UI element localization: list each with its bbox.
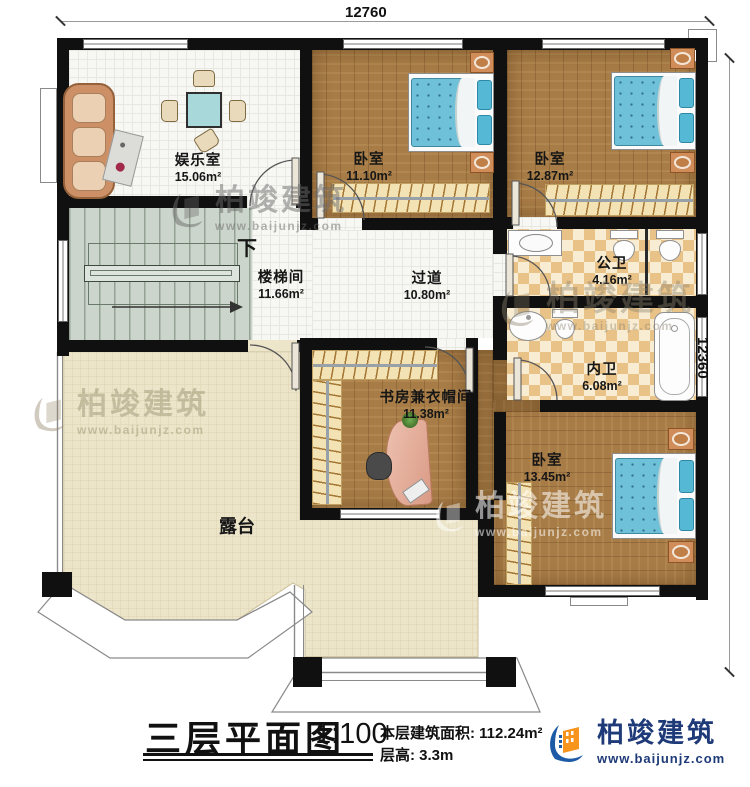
wardrobe <box>332 183 490 213</box>
room-name: 楼梯间 <box>258 270 305 287</box>
brand-website: www.baijunjz.com <box>597 751 725 766</box>
dimension-top-value: 12760 <box>345 4 387 21</box>
bed-pillow <box>679 78 694 108</box>
room-label-bedroom1: 卧室 11.10m² <box>346 152 392 184</box>
wall-passage-bedroom3 <box>494 412 506 500</box>
decor-dot <box>120 142 126 148</box>
window <box>58 240 68 322</box>
window <box>545 586 660 596</box>
room-name: 露台 <box>219 516 255 536</box>
title-underline <box>143 753 373 756</box>
wall-innerbath-bottom <box>540 400 696 412</box>
flower-decor <box>115 162 126 173</box>
wall-bedroom2-bottom <box>557 217 696 229</box>
watermark: 柏竣建筑 www.baijunjz.com <box>30 390 209 437</box>
dimension-right-value: 12360 <box>694 337 711 379</box>
bathroom-sink <box>509 311 547 341</box>
wardrobe <box>312 350 438 380</box>
toilet-tank <box>552 309 578 318</box>
dimension-text: 12760 <box>345 4 387 21</box>
bed-blanket <box>455 78 475 147</box>
sink-faucet <box>526 315 531 320</box>
room-label-bedroom3: 卧室 13.45m² <box>524 453 571 485</box>
door-gap-floor <box>513 217 557 229</box>
wall-bedroom1-bedroom2 <box>493 50 507 217</box>
toilet-tank <box>610 230 638 239</box>
plan-scale: 1:100 <box>315 718 388 751</box>
room-name: 书房兼衣帽间 <box>380 390 473 407</box>
bed-blanket <box>657 76 677 146</box>
window <box>542 39 665 49</box>
wall-study-top <box>466 338 478 350</box>
watermark-url: www.baijunjz.com <box>77 423 209 437</box>
floor-area-value: 112.24m² <box>479 725 542 742</box>
nightstand <box>470 52 494 73</box>
stairs-center-railing <box>84 265 240 282</box>
bed-pillow <box>679 113 694 143</box>
bed <box>612 453 696 539</box>
room-area: 6.08m² <box>582 379 622 394</box>
room-name: 卧室 <box>524 453 571 470</box>
wall-bath-left <box>493 229 507 254</box>
floor-height-row: 层高: 3.3m <box>380 744 453 765</box>
room-label-hallway: 过道 10.80m² <box>404 271 451 303</box>
bed <box>611 72 696 150</box>
nightstand <box>670 48 695 69</box>
room-area: 4.16m² <box>592 273 632 288</box>
room-name: 过道 <box>404 271 451 288</box>
toilet-tank <box>656 230 684 239</box>
wall-bedroom2-bottom <box>493 217 513 229</box>
floor-height-value: 3.3m <box>419 747 453 764</box>
room-label-terrace: 露台 <box>219 516 255 537</box>
window <box>697 233 707 295</box>
room-name: 内卫 <box>582 362 622 379</box>
wall-study-left <box>300 338 312 520</box>
bed <box>408 73 494 152</box>
room-label-public-bath: 公卫 4.16m² <box>592 256 632 288</box>
door-gap-floor <box>493 360 507 402</box>
down-text: 下 <box>237 238 257 260</box>
window-sill <box>570 597 628 606</box>
title-underline <box>143 759 373 761</box>
brand-logo: 柏竣建筑 www.baijunjz.com <box>545 718 725 768</box>
door-gap-floor <box>318 218 362 230</box>
bed-pillow <box>477 80 492 110</box>
chair <box>161 100 178 122</box>
room-label-bedroom2: 卧室 12.87m² <box>527 152 574 184</box>
sofa <box>63 83 115 199</box>
nightstand <box>668 428 694 450</box>
wall-ent-bedroom1 <box>300 50 312 230</box>
door-gap-floor <box>437 338 466 350</box>
door-gap-floor <box>248 340 297 352</box>
bed-pillow <box>679 460 694 493</box>
door-gap-floor <box>494 400 540 412</box>
dimension-line-right <box>729 58 730 672</box>
floor-height-label: 层高: <box>380 747 415 764</box>
bathtub-drain <box>671 325 678 332</box>
floor-plan: 娱乐室 15.06m² 卧室 11.10m² 卧室 12.87m² 公卫 4.1… <box>0 0 750 787</box>
stairs-railing-inner <box>90 270 232 276</box>
watermark-name: 柏竣建筑 <box>77 390 209 420</box>
window <box>343 39 463 49</box>
wall-bedroom1-bottom <box>362 218 493 230</box>
chair <box>193 70 215 87</box>
chair <box>229 100 246 122</box>
floor-area-label: 本层建筑面积: <box>380 725 475 742</box>
hallway-floor <box>312 230 493 338</box>
wall-study-right <box>466 350 478 508</box>
window-sill <box>40 88 57 183</box>
window <box>83 39 188 49</box>
stairs-down-label: 下 <box>237 238 257 262</box>
sink-basin <box>519 234 553 252</box>
nightstand <box>670 152 695 173</box>
game-table <box>186 92 222 128</box>
dimension-line-top <box>60 21 710 22</box>
passage-floor <box>478 350 494 500</box>
brand-name: 柏竣建筑 <box>597 720 725 747</box>
sofa-cushion <box>72 93 106 123</box>
bed-pillow <box>679 498 694 531</box>
nightstand <box>470 152 494 173</box>
room-area: 13.45m² <box>524 470 571 485</box>
wardrobe <box>506 482 532 585</box>
bath-partition <box>645 229 648 295</box>
door-gap-floor <box>247 196 296 208</box>
wall-bedroom1-bottom <box>312 218 318 230</box>
dimension-text: 12360 <box>694 337 711 379</box>
brand-logo-icon <box>545 718 589 768</box>
brand-logo-icon <box>30 391 70 437</box>
bed-blanket <box>657 458 677 534</box>
room-name: 娱乐室 <box>175 153 222 170</box>
floor-area-row: 本层建筑面积: 112.24m² <box>380 722 543 743</box>
room-name: 卧室 <box>527 152 574 169</box>
wall-bedroom3-left <box>478 500 494 597</box>
plan-scale-text: 1:100 <box>315 718 388 750</box>
window <box>340 509 440 519</box>
room-area: 11.66m² <box>258 287 305 302</box>
sofa-cushion <box>72 161 106 191</box>
desk-chair <box>366 452 392 480</box>
bathtub <box>654 312 695 401</box>
wall-stairs-bottom <box>297 340 312 352</box>
room-label-study: 书房兼衣帽间 11.38m² <box>380 390 473 422</box>
room-area: 11.38m² <box>380 407 473 422</box>
room-name: 卧室 <box>346 152 392 169</box>
room-label-entertainment: 娱乐室 15.06m² <box>175 153 222 185</box>
nightstand <box>668 541 694 563</box>
bed-pillow <box>477 115 492 145</box>
wall-stairs-bottom <box>57 340 248 352</box>
room-area: 15.06m² <box>175 170 222 185</box>
wall-baths-divider <box>493 296 696 308</box>
room-label-inner-bath: 内卫 6.08m² <box>582 362 622 394</box>
wall-ent-bottom <box>296 196 300 208</box>
wall-study-top <box>300 338 437 350</box>
room-label-stairwell: 楼梯间 11.66m² <box>258 270 305 302</box>
bathroom-sink <box>508 230 562 256</box>
sofa-cushion <box>72 127 106 157</box>
door-gap-floor <box>493 254 507 297</box>
room-name: 公卫 <box>592 256 632 273</box>
room-area: 11.10m² <box>346 169 392 184</box>
wardrobe <box>545 184 694 216</box>
room-area: 10.80m² <box>404 288 451 303</box>
wardrobe <box>312 380 342 505</box>
room-area: 12.87m² <box>527 169 574 184</box>
